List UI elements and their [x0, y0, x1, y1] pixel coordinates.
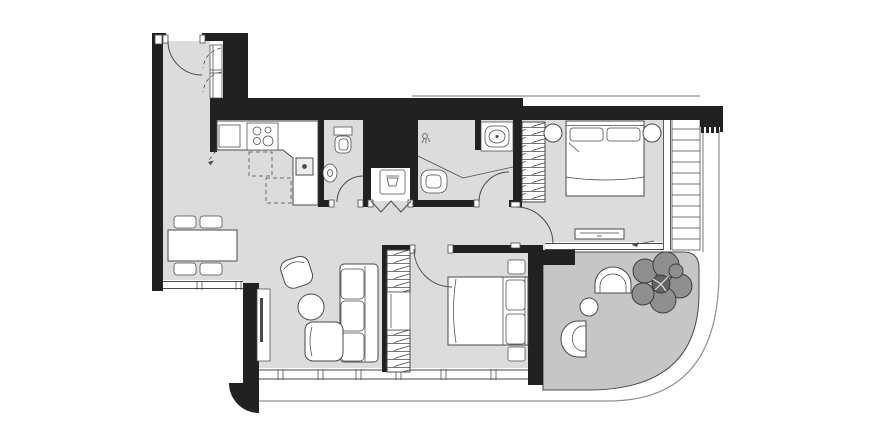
entry-closet: [210, 45, 222, 98]
floor-plan: [0, 0, 890, 440]
dresser: [575, 229, 624, 239]
balcony-deck: [664, 118, 701, 250]
dining-table: [168, 230, 237, 261]
hatch-teeth: [701, 127, 723, 133]
dining-window: [163, 280, 243, 290]
wall-basin: [323, 164, 337, 182]
floor-plan-canvas: [0, 0, 890, 440]
pillow: [570, 128, 603, 141]
terrace-table: [580, 298, 598, 316]
toilet-tank: [334, 127, 352, 135]
wardrobe: [387, 250, 410, 292]
double-bed: [566, 121, 644, 196]
seat-cushion: [341, 333, 364, 361]
wall-notch: [155, 35, 162, 44]
seat-cushion: [341, 301, 364, 331]
double-bed: [448, 277, 528, 345]
chaise-lounge: [305, 322, 343, 361]
nightstand: [643, 124, 661, 142]
wardrobe: [387, 330, 410, 372]
bedroom1-terrace-glass: [545, 241, 663, 251]
nightstand: [544, 124, 562, 142]
wardrobe: [522, 122, 545, 202]
tv-panel: [257, 289, 270, 361]
dining-chair: [174, 263, 196, 275]
dining-chair: [174, 216, 196, 228]
pillow: [506, 314, 525, 344]
cooktop: [247, 123, 278, 150]
washing-machine: [380, 170, 405, 194]
curved-corner-wall: [229, 283, 259, 413]
coffee-table: [298, 294, 324, 320]
dining-chair: [200, 263, 222, 275]
deck-boards: [672, 118, 700, 250]
bedroom1-glass-wall: [664, 118, 671, 250]
pillow: [607, 128, 640, 141]
nightstand: [508, 260, 525, 274]
nightstand: [508, 347, 525, 361]
refrigerator: [219, 125, 240, 147]
pillow: [506, 280, 525, 310]
wardrobe-niche: [387, 292, 410, 330]
toilet-bowl: [335, 136, 351, 153]
seat-cushion: [341, 269, 364, 299]
toilet: [421, 170, 447, 193]
dining-chair: [200, 216, 222, 228]
